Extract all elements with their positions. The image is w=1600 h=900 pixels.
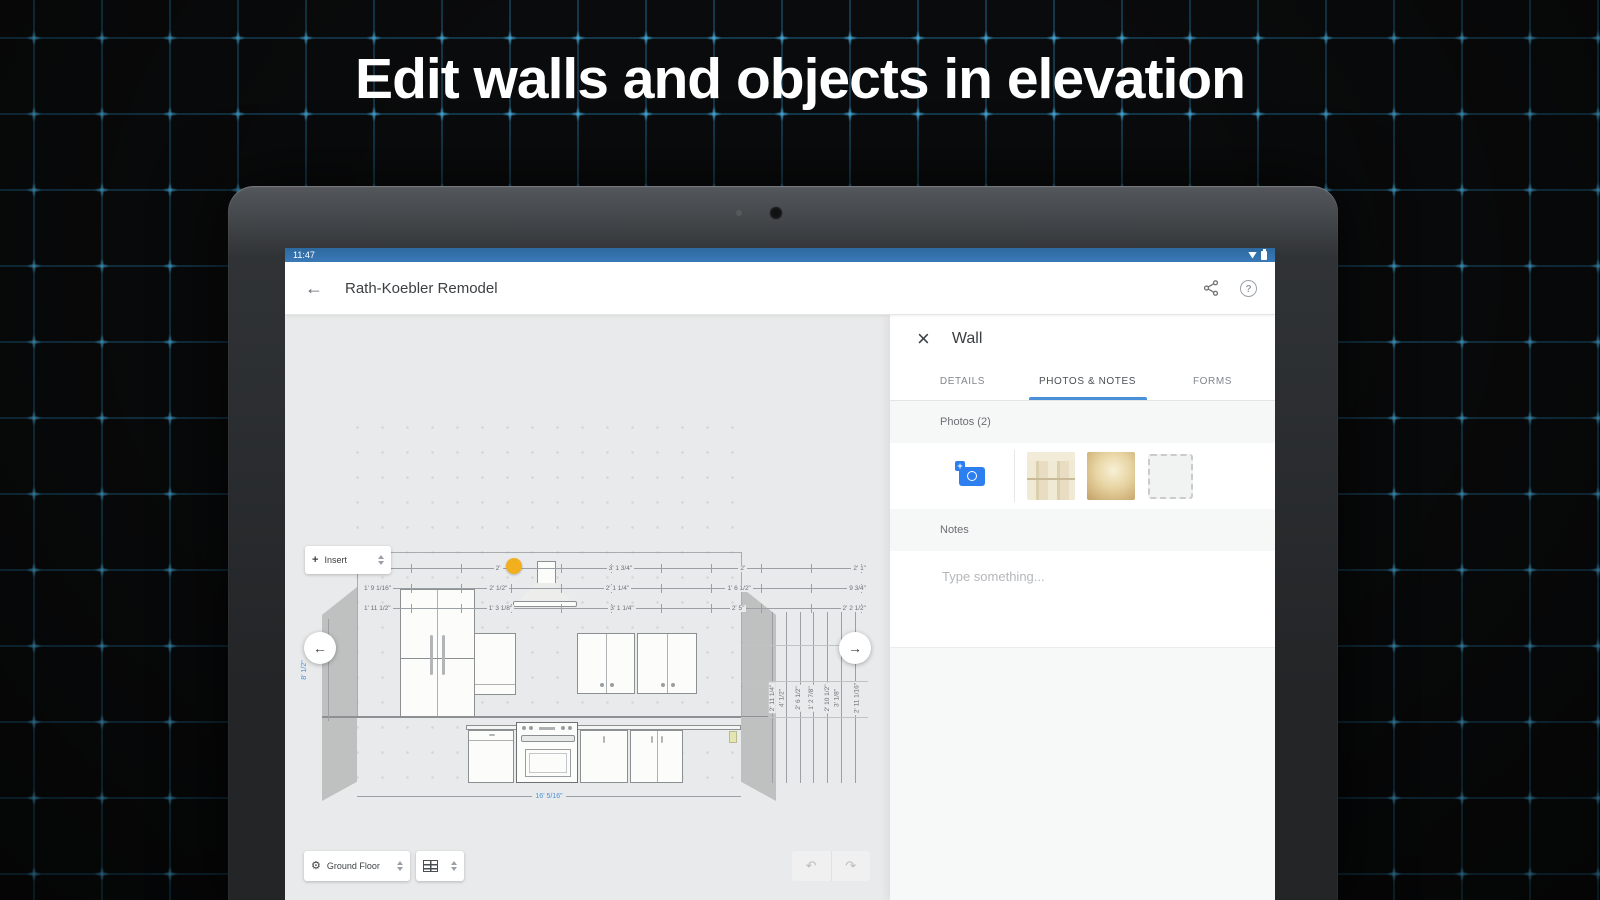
hero-title: Edit walls and objects in elevation bbox=[0, 46, 1600, 112]
oven-range[interactable] bbox=[516, 722, 578, 783]
panel-filler bbox=[890, 647, 1275, 900]
insert-label: Insert bbox=[324, 555, 347, 565]
undo-icon: ↶ bbox=[806, 858, 817, 874]
dimension-label: 3' 1 1/4" bbox=[608, 604, 635, 613]
dimension-row-1: 2' 0 3/4"2'3' 1 3/4"2'2' 1" bbox=[362, 564, 868, 573]
chevron-up-icon bbox=[378, 555, 384, 559]
wifi-icon bbox=[1248, 252, 1257, 259]
wall-edge-left bbox=[357, 552, 358, 716]
back-arrow-icon[interactable]: ← bbox=[305, 278, 323, 299]
dimension-label: 1' 3 1/8" bbox=[487, 604, 514, 613]
level-selector[interactable] bbox=[416, 851, 464, 881]
chevron-down-icon bbox=[397, 867, 403, 871]
tab-details[interactable]: DETAILS bbox=[900, 363, 1025, 400]
redo-icon: ↷ bbox=[845, 858, 856, 874]
ceiling-line bbox=[357, 552, 741, 553]
help-icon[interactable]: ? bbox=[1240, 280, 1257, 297]
chevron-up-icon bbox=[451, 861, 457, 865]
dimension-label: 3' 1 3/4" bbox=[607, 564, 634, 573]
wall-width-dimension: 16' 5/16" bbox=[357, 792, 741, 801]
dimension-label: 2' 1 1/4" bbox=[604, 584, 631, 593]
refrigerator-lower[interactable] bbox=[400, 589, 475, 659]
refrigerator[interactable] bbox=[400, 657, 475, 717]
wall-edge-right bbox=[741, 552, 742, 716]
wall-properties-panel: × Wall DETAILS PHOTOS & NOTES FORMS Phot… bbox=[890, 315, 1275, 900]
insert-control[interactable]: + Insert bbox=[305, 546, 391, 574]
tablet-screen: 11:47 ← Rath-Koebler Remodel ? bbox=[285, 248, 1275, 900]
counter-item[interactable] bbox=[729, 731, 737, 743]
status-bar: 11:47 bbox=[285, 248, 1275, 262]
dimension-row-2: 1' 9 1/16"2' 1/2"2' 1 1/4"1' 6 1/2"9 3/4… bbox=[362, 584, 868, 593]
dimension-label: 2' 1/2" bbox=[487, 584, 509, 593]
wall-cabinet-right-2[interactable] bbox=[637, 633, 697, 694]
dimension-label: 1' 11 1/2" bbox=[362, 604, 393, 613]
redo-button[interactable]: ↷ bbox=[832, 851, 871, 881]
floor-line bbox=[322, 716, 768, 718]
wall-cabinet-right-1[interactable] bbox=[577, 633, 635, 694]
notes-section-header: Notes bbox=[890, 509, 1275, 551]
previous-wall-button[interactable]: ← bbox=[304, 632, 336, 664]
arrow-left-icon: ← bbox=[313, 640, 327, 656]
close-icon[interactable]: × bbox=[917, 328, 930, 350]
ambient-sensor-dot bbox=[736, 210, 742, 216]
photos-row bbox=[890, 443, 1275, 509]
level-stepper[interactable] bbox=[451, 861, 457, 871]
front-camera bbox=[770, 207, 782, 219]
floors-grid-icon bbox=[423, 860, 438, 872]
wall-cabinet-selected[interactable] bbox=[474, 633, 516, 695]
base-cabinet-1[interactable] bbox=[580, 730, 628, 783]
photo-placeholder[interactable] bbox=[1148, 454, 1193, 499]
dimension-label: 2' 1" bbox=[851, 564, 868, 573]
gear-icon: ⚙ bbox=[311, 861, 321, 872]
dimension-label: 1' 6 1/2" bbox=[725, 584, 752, 593]
base-cabinet-2[interactable] bbox=[630, 730, 683, 783]
floor-selector[interactable]: ⚙ Ground Floor bbox=[304, 851, 410, 881]
floor-selector-label: Ground Floor bbox=[327, 861, 380, 871]
photos-section-header: Photos (2) bbox=[890, 401, 1275, 443]
battery-icon bbox=[1261, 251, 1267, 260]
dimension-label: 2' bbox=[494, 564, 503, 573]
insert-stepper[interactable] bbox=[378, 555, 384, 565]
floor-stepper[interactable] bbox=[397, 861, 403, 871]
photo-thumbnail-1[interactable] bbox=[1027, 452, 1075, 500]
arrow-right-icon: → bbox=[848, 640, 862, 656]
history-controls: ↶ ↷ bbox=[792, 851, 870, 881]
dimension-connector bbox=[741, 717, 868, 718]
chevron-down-icon bbox=[451, 867, 457, 871]
dimension-connector bbox=[741, 681, 868, 682]
panel-header: × Wall bbox=[890, 315, 1275, 363]
dimension-label: 2' bbox=[738, 564, 747, 573]
chevron-down-icon bbox=[378, 561, 384, 565]
panel-title: Wall bbox=[952, 330, 983, 348]
next-wall-button[interactable]: → bbox=[839, 632, 871, 664]
tab-forms[interactable]: FORMS bbox=[1150, 363, 1275, 400]
add-photo-button[interactable] bbox=[930, 450, 1015, 502]
insert-icon: + bbox=[312, 555, 318, 565]
panel-tabs: DETAILS PHOTOS & NOTES FORMS bbox=[890, 363, 1275, 401]
project-title: Rath-Koebler Remodel bbox=[345, 280, 498, 297]
status-time: 11:47 bbox=[293, 248, 315, 262]
photo-thumbnail-2[interactable] bbox=[1087, 452, 1135, 500]
camera-plus-icon bbox=[959, 467, 985, 486]
dimension-label: 2' 5" bbox=[730, 604, 747, 613]
app-bar: ← Rath-Koebler Remodel ? bbox=[285, 262, 1275, 315]
tab-photos-notes[interactable]: PHOTOS & NOTES bbox=[1025, 363, 1150, 400]
notes-input[interactable] bbox=[940, 567, 1244, 641]
notes-area bbox=[890, 551, 1275, 647]
elevation-canvas[interactable]: 2' 0 3/4"2'3' 1 3/4"2'2' 1" 1' 9 1/16"2'… bbox=[285, 315, 890, 900]
share-icon[interactable] bbox=[1202, 279, 1220, 297]
undo-button[interactable]: ↶ bbox=[792, 851, 832, 881]
tablet-device: 11:47 ← Rath-Koebler Remodel ? bbox=[228, 186, 1338, 900]
dimension-label: 1' 9 1/16" bbox=[362, 584, 393, 593]
dimension-label: 9 3/4" bbox=[847, 584, 868, 593]
selection-handle-dot[interactable] bbox=[506, 558, 522, 574]
chevron-up-icon bbox=[397, 861, 403, 865]
sink-base-cabinet[interactable] bbox=[468, 730, 514, 783]
